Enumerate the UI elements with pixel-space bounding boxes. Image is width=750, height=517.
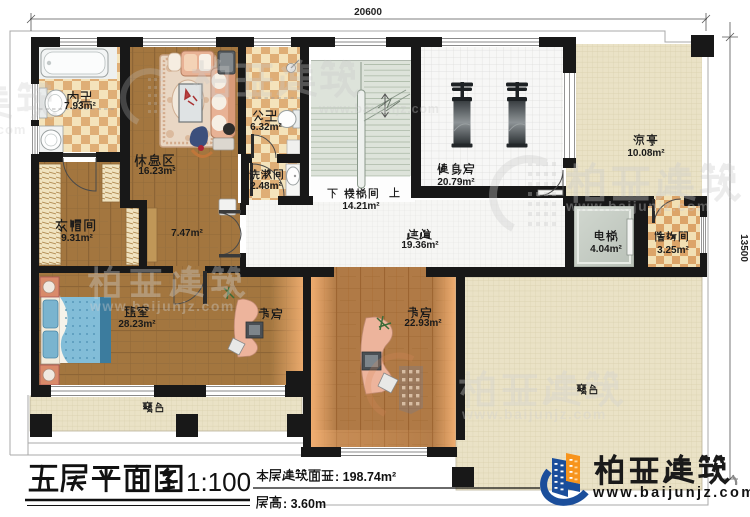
svg-text:2.48m²: 2.48m² bbox=[250, 181, 282, 192]
svg-text:1:100: 1:100 bbox=[186, 467, 251, 497]
svg-text:16.23m²: 16.23m² bbox=[138, 166, 176, 177]
svg-text:20.79m²: 20.79m² bbox=[437, 177, 475, 188]
svg-text:13500: 13500 bbox=[738, 234, 749, 262]
svg-text:28.23m²: 28.23m² bbox=[118, 319, 156, 330]
svg-text:20600: 20600 bbox=[354, 7, 382, 18]
svg-text:jz.com: jz.com bbox=[0, 122, 26, 137]
svg-text:7.93m²: 7.93m² bbox=[64, 101, 96, 112]
svg-text:: 198.74m²: : 198.74m² bbox=[335, 470, 396, 484]
svg-text:www.baijunjz.com: www.baijunjz.com bbox=[318, 102, 440, 116]
svg-text:10.08m²: 10.08m² bbox=[627, 148, 665, 159]
svg-text:14.21m²: 14.21m² bbox=[342, 201, 380, 212]
svg-text:7.47m²: 7.47m² bbox=[171, 228, 203, 239]
svg-text:6.32m²: 6.32m² bbox=[250, 122, 282, 133]
svg-text:www.baijunjz.com: www.baijunjz.com bbox=[89, 298, 235, 314]
svg-text:4.04m²: 4.04m² bbox=[590, 244, 622, 255]
svg-text:22.93m²: 22.93m² bbox=[404, 318, 442, 329]
svg-text:: 3.60m: : 3.60m bbox=[283, 497, 326, 511]
svg-text:9.31m²: 9.31m² bbox=[61, 233, 93, 244]
svg-text:www.baijunjz.com: www.baijunjz.com bbox=[461, 406, 607, 422]
svg-text:www.baijunjz.com: www.baijunjz.com bbox=[565, 198, 711, 214]
svg-text:3.25m²: 3.25m² bbox=[657, 245, 689, 256]
svg-text:www.baijunjz.com: www.baijunjz.com bbox=[592, 485, 750, 501]
svg-text:19.36m²: 19.36m² bbox=[401, 240, 439, 251]
